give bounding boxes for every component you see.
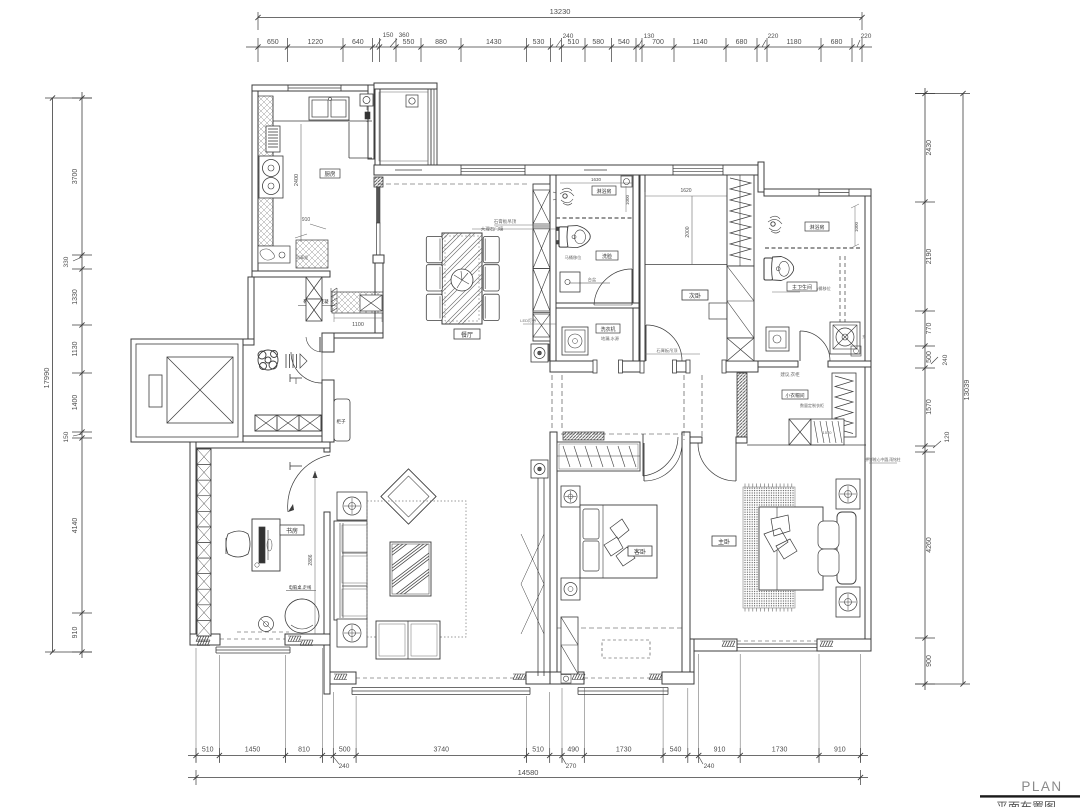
- svg-text:510: 510: [532, 747, 544, 754]
- svg-text:240: 240: [704, 763, 715, 770]
- svg-text:书房: 书房: [286, 527, 298, 535]
- svg-text:220: 220: [768, 33, 779, 40]
- svg-text:次卧: 次卧: [689, 292, 701, 300]
- svg-text:13039: 13039: [962, 380, 971, 401]
- svg-text:1220: 1220: [308, 39, 324, 46]
- svg-text:柜子: 柜子: [337, 418, 346, 425]
- svg-text:洗衣机: 洗衣机: [600, 326, 615, 333]
- svg-text:360: 360: [399, 32, 410, 39]
- svg-text:1630: 1630: [591, 177, 602, 182]
- svg-text:1620: 1620: [680, 188, 691, 194]
- svg-text:1730: 1730: [772, 747, 788, 754]
- svg-text:650: 650: [267, 39, 279, 46]
- svg-text:13230: 13230: [550, 7, 571, 16]
- svg-text:220: 220: [861, 33, 872, 40]
- svg-text:17990: 17990: [42, 368, 51, 389]
- svg-text:120: 120: [944, 431, 951, 442]
- svg-text:4260: 4260: [926, 537, 933, 553]
- svg-text:490: 490: [567, 747, 579, 754]
- svg-text:淋浴房: 淋浴房: [809, 224, 824, 231]
- svg-text:PLAN: PLAN: [1021, 779, 1062, 794]
- svg-text:1100: 1100: [352, 322, 364, 328]
- svg-text:2886: 2886: [308, 554, 314, 565]
- svg-text:2000: 2000: [685, 226, 691, 237]
- svg-text:910: 910: [302, 217, 311, 223]
- svg-text:地漏,水源: 地漏,水源: [601, 335, 620, 342]
- svg-text:1730: 1730: [616, 747, 632, 754]
- svg-text:910: 910: [72, 627, 79, 639]
- svg-text:770: 770: [926, 323, 933, 335]
- svg-text:14580: 14580: [518, 768, 539, 777]
- svg-text:2400: 2400: [294, 174, 300, 186]
- svg-text:500: 500: [339, 747, 351, 754]
- svg-text:烹: 烹: [862, 334, 866, 339]
- svg-text:厨房: 厨房: [324, 170, 336, 178]
- svg-text:数量定制衣柜: 数量定制衣柜: [800, 402, 824, 408]
- svg-text:910: 910: [834, 747, 846, 754]
- svg-text:押铆椎心中圆,雨铭柱: 押铆椎心中圆,雨铭柱: [865, 457, 900, 462]
- svg-text:150: 150: [383, 32, 394, 39]
- svg-text:1330: 1330: [72, 289, 79, 305]
- svg-text:510: 510: [567, 39, 579, 46]
- svg-text:大理石门壤: 大理石门壤: [481, 226, 504, 233]
- svg-text:3740: 3740: [434, 747, 450, 754]
- svg-text:2190: 2190: [926, 249, 933, 265]
- svg-text:主卧: 主卧: [718, 538, 730, 546]
- svg-text:640: 640: [352, 39, 364, 46]
- svg-text:330: 330: [63, 256, 70, 267]
- svg-text:130: 130: [644, 33, 655, 40]
- svg-text:680: 680: [736, 39, 748, 46]
- svg-text:平面布置图: 平面布置图: [996, 800, 1056, 807]
- svg-text:1570: 1570: [926, 399, 933, 415]
- svg-text:消毒柜: 消毒柜: [296, 254, 309, 261]
- svg-text:1570: 1570: [823, 430, 833, 435]
- svg-text:1000: 1000: [625, 194, 630, 205]
- svg-text:1000: 1000: [854, 221, 859, 232]
- svg-text:台盆: 台盆: [588, 276, 597, 283]
- svg-text:150: 150: [63, 431, 70, 442]
- svg-text:餐厅: 餐厅: [461, 331, 473, 339]
- svg-text:540: 540: [618, 39, 630, 46]
- svg-text:680: 680: [831, 39, 843, 46]
- svg-text:LED灯带: LED灯带: [520, 317, 536, 323]
- svg-text:810: 810: [298, 747, 310, 754]
- svg-text:客卧: 客卧: [634, 548, 646, 556]
- svg-text:900: 900: [926, 655, 933, 667]
- svg-text:1180: 1180: [786, 39, 801, 46]
- svg-text:1450: 1450: [245, 747, 261, 754]
- svg-text:880: 880: [435, 39, 447, 46]
- svg-text:电脑桌,走线: 电脑桌,走线: [289, 584, 312, 591]
- svg-text:石膏板吊顶: 石膏板吊顶: [494, 218, 517, 225]
- svg-text:石膏板吊顶: 石膏板吊顶: [657, 347, 679, 354]
- svg-text:小衣帽间: 小衣帽间: [785, 392, 804, 399]
- svg-text:240: 240: [339, 763, 350, 770]
- svg-text:910: 910: [714, 747, 726, 754]
- svg-text:1400: 1400: [72, 395, 79, 411]
- svg-text:1130: 1130: [72, 341, 79, 356]
- svg-text:4140: 4140: [72, 518, 79, 534]
- svg-text:580: 580: [592, 39, 604, 46]
- svg-text:240: 240: [563, 33, 574, 40]
- svg-text:建议,衣柜: 建议,衣柜: [780, 371, 800, 378]
- svg-text:500: 500: [926, 351, 933, 363]
- svg-text:530: 530: [533, 39, 545, 46]
- svg-text:240: 240: [942, 354, 949, 365]
- svg-text:540: 540: [670, 747, 682, 754]
- svg-text:270: 270: [566, 763, 577, 770]
- svg-text:550: 550: [403, 39, 415, 46]
- svg-text:1430: 1430: [486, 39, 502, 46]
- svg-text:510: 510: [202, 747, 214, 754]
- svg-text:1140: 1140: [692, 39, 707, 46]
- svg-text:淋浴房: 淋浴房: [596, 188, 611, 195]
- svg-text:洗脸: 洗脸: [602, 253, 612, 260]
- svg-text:3700: 3700: [72, 169, 79, 185]
- svg-text:主卫生间: 主卫生间: [792, 284, 812, 291]
- svg-text:700: 700: [652, 39, 664, 46]
- svg-text:马桶移位: 马桶移位: [565, 254, 582, 261]
- svg-text:2430: 2430: [926, 140, 933, 156]
